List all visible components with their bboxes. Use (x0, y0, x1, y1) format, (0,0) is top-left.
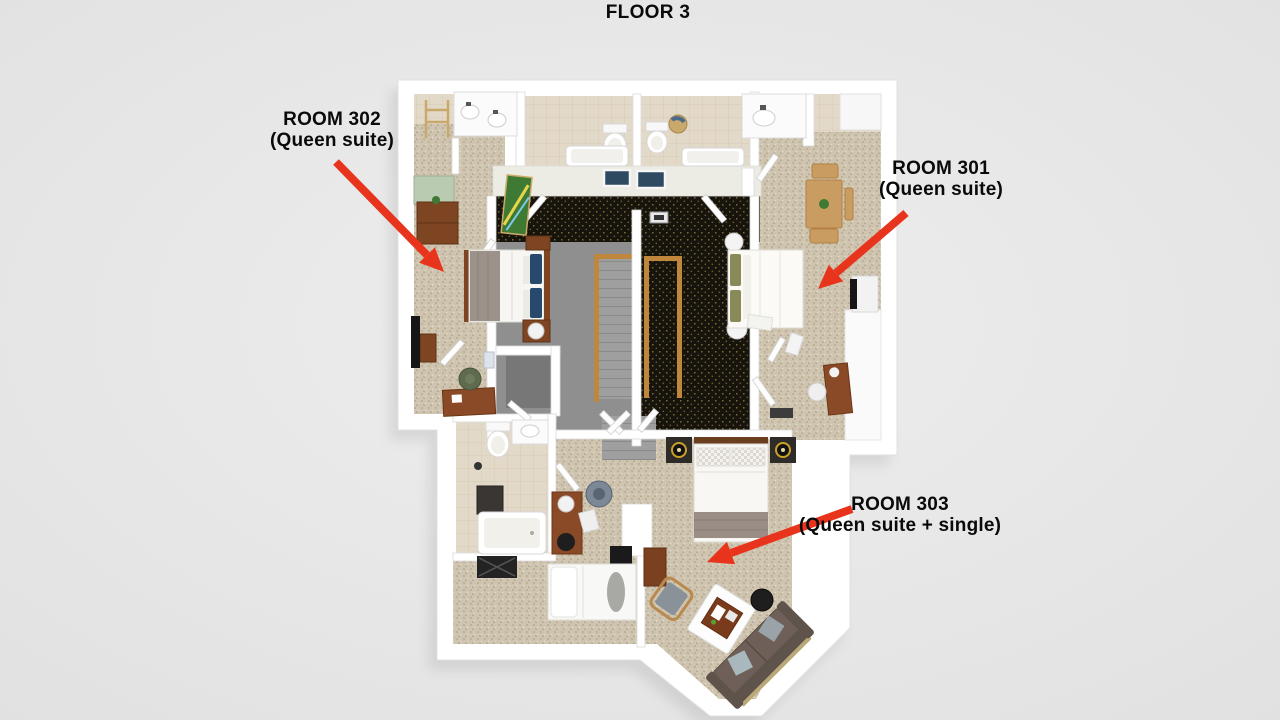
leaning-artwork (501, 175, 532, 235)
floor-plan-stage: FLOOR 3 ROOM 302 (Queen suite) ROOM 301 … (0, 0, 1280, 720)
sink (461, 105, 479, 119)
tv-302 (411, 316, 420, 368)
bath-cabinet (477, 486, 503, 514)
framed-picture (637, 171, 665, 188)
media-cabinet (420, 334, 436, 362)
mini-fridge (484, 352, 494, 368)
plant (432, 196, 440, 204)
floor-title: FLOOR 3 (512, 2, 784, 24)
queen-bed-303 (694, 437, 768, 542)
room-301-type: (Queen suite) (821, 179, 1061, 200)
credenza (644, 548, 666, 586)
luggage-rack (477, 556, 517, 578)
entry-mat (770, 408, 793, 418)
stair-railing (644, 256, 682, 261)
sink (521, 425, 539, 437)
sink (488, 113, 506, 127)
queen-bed-302 (464, 250, 550, 322)
lamp (558, 496, 574, 512)
room-302-name: ROOM 302 (212, 109, 452, 130)
toilet (486, 422, 510, 431)
lamp (528, 323, 544, 339)
nightstand (526, 236, 550, 250)
desk-chair-301 (808, 383, 826, 401)
room-303-name: ROOM 303 (768, 494, 1032, 515)
staircase-treads (599, 259, 634, 399)
desk-301 (823, 363, 852, 415)
closet-301 (845, 310, 881, 440)
room-302-type: (Queen suite) (212, 130, 452, 151)
room-301-label: ROOM 301 (Queen suite) (821, 158, 1061, 200)
plant (819, 199, 829, 209)
lamp (725, 233, 743, 251)
framed-picture (604, 170, 630, 186)
storage-cabinet (840, 94, 881, 130)
room-302-label: ROOM 302 (Queen suite) (212, 109, 452, 151)
floor-plan-svg (0, 0, 1280, 720)
tv-301 (850, 279, 857, 309)
towel-ring (474, 462, 482, 470)
chair (810, 229, 838, 243)
room-303-label: ROOM 303 (Queen suite + single) (768, 494, 1032, 536)
stool (557, 533, 575, 551)
queen-bed-301 (728, 250, 803, 331)
single-bed (548, 564, 636, 620)
sink (753, 110, 775, 126)
toilet (646, 122, 668, 131)
side-table (751, 589, 773, 611)
room-303-type: (Queen suite + single) (768, 515, 1032, 536)
desk-302 (442, 388, 495, 417)
room-301-name: ROOM 301 (821, 158, 1061, 179)
closet-302-floor (506, 356, 552, 408)
toilet (603, 124, 627, 133)
